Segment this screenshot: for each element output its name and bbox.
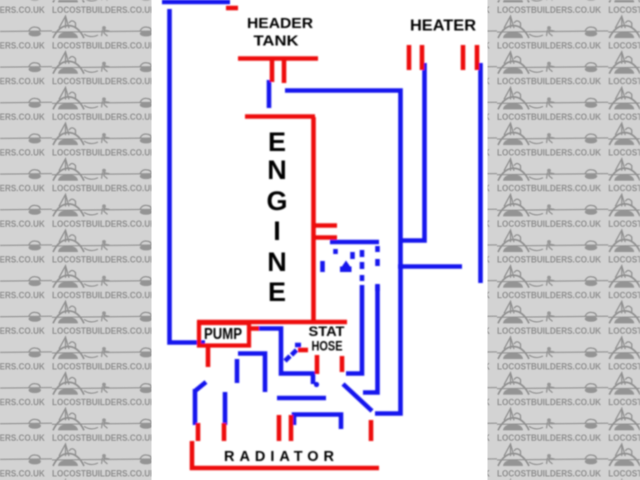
svg-text:HEATER: HEATER — [410, 18, 476, 35]
svg-text:RADIATOR: RADIATOR — [224, 449, 335, 465]
svg-text:E: E — [268, 127, 286, 157]
svg-text:TANK: TANK — [254, 33, 299, 50]
svg-text:HOSE: HOSE — [312, 338, 343, 354]
svg-text:HEADER: HEADER — [247, 15, 313, 32]
svg-text:E: E — [268, 277, 286, 307]
svg-text:I: I — [273, 216, 281, 246]
svg-text:N: N — [267, 247, 287, 277]
svg-text:PUMP: PUMP — [204, 326, 242, 343]
svg-text:N: N — [267, 155, 287, 185]
svg-text:G: G — [266, 186, 287, 216]
